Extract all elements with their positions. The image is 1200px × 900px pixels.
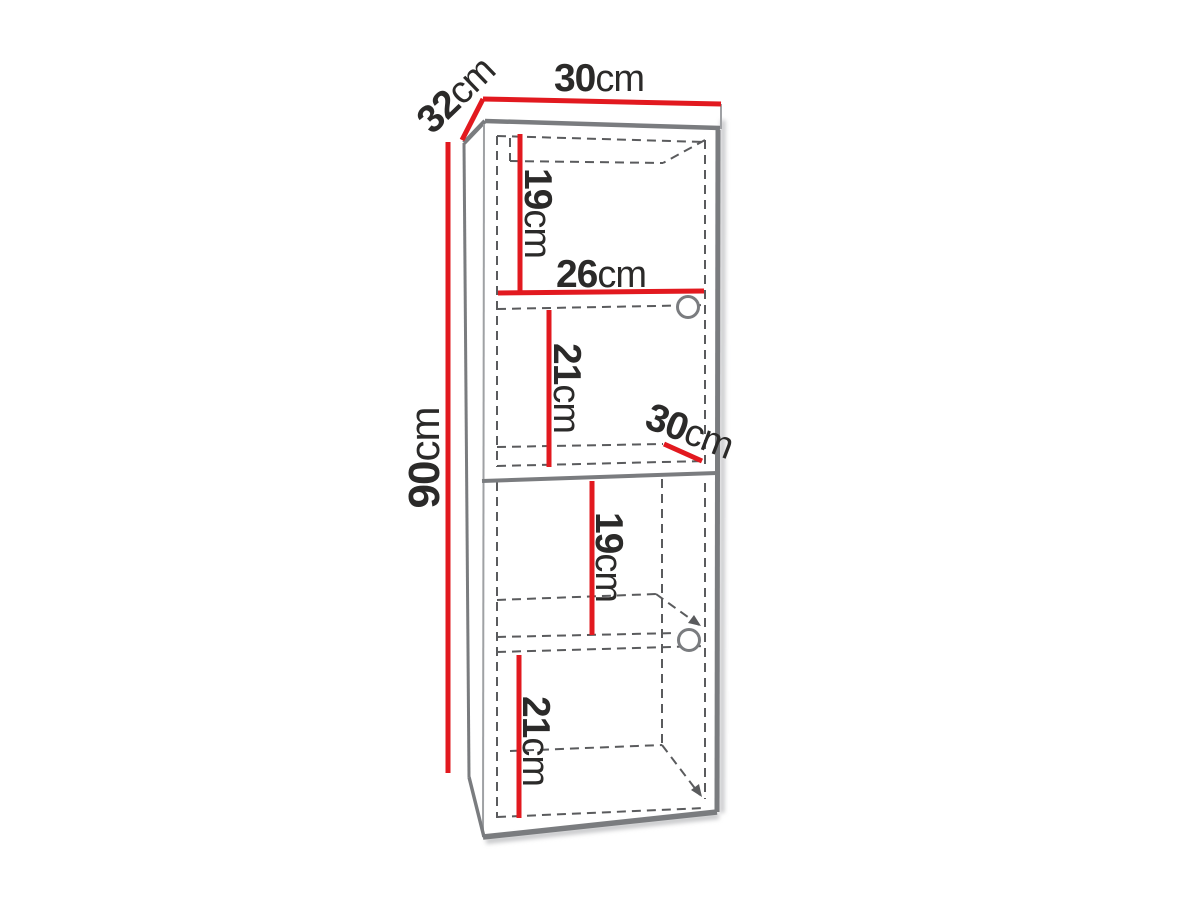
side-back-edge [464,143,469,777]
dimension-labels: 30cm 32cm 90cm 19cm 26cm 21cm 30cm 19cm … [400,48,739,786]
dashed-shelf-line [497,305,705,309]
arrowhead-icon [688,615,701,626]
label-width-top: 30cm [554,57,644,100]
label-lower-top-section: 19cm [587,512,630,602]
label-upper-top-section: 19cm [516,168,559,258]
diagram-canvas: 30cm 32cm 90cm 19cm 26cm 21cm 30cm 19cm … [0,0,1200,900]
side-bottom-edge [469,777,484,837]
middle-divider-edge [482,473,717,481]
dashed-shelf-line [497,646,705,652]
label-interior-width: 26cm [556,253,646,296]
dashed-line [510,161,663,163]
cabinet-dimension-diagram: 30cm 32cm 90cm 19cm 26cm 21cm 30cm 19cm … [0,0,1200,900]
dashed-line [497,461,705,466]
lower-door-knob-icon [679,630,700,651]
label-lower-bottom-section: 21cm [514,696,557,786]
dimension-lines [448,99,721,818]
shadow-bottom [486,816,719,841]
upper-door-knob-icon [678,297,699,318]
dashed-line [663,140,705,163]
front-right-edge [717,130,718,812]
dashed-shelf-line [497,633,677,637]
dashed-arrow-line [662,745,700,795]
label-upper-bottom-section: 21cm [545,343,588,433]
dashed-line [497,444,663,447]
dashed-line [497,136,704,142]
dashed-shelf-line [497,594,656,600]
label-height-total: 90cm [400,408,449,509]
top-panel-bottom-edge [485,121,720,128]
cabinet-outline [464,104,721,837]
label-depth-top: 32cm [409,48,504,141]
